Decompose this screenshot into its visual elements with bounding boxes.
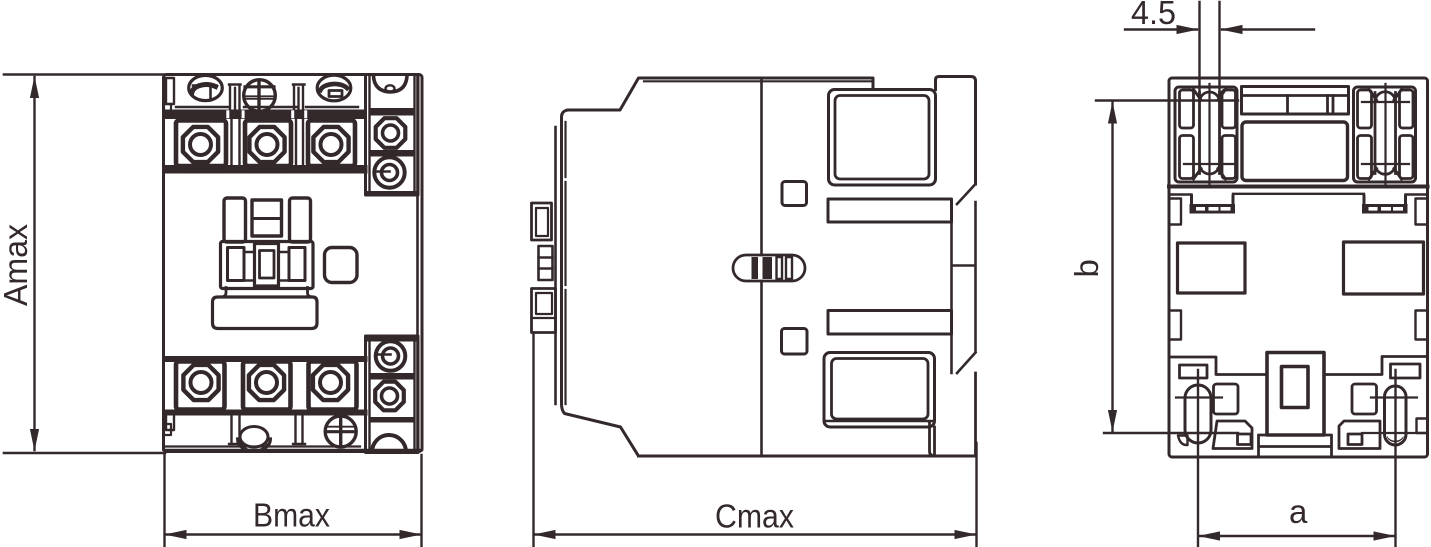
svg-text:Bmax: Bmax (253, 497, 330, 534)
svg-text:Amax: Amax (0, 224, 34, 306)
svg-text:a: a (1289, 493, 1308, 530)
svg-text:b: b (1068, 259, 1105, 277)
svg-text:Cmax: Cmax (715, 498, 794, 535)
svg-text:4.5: 4.5 (1131, 0, 1176, 31)
